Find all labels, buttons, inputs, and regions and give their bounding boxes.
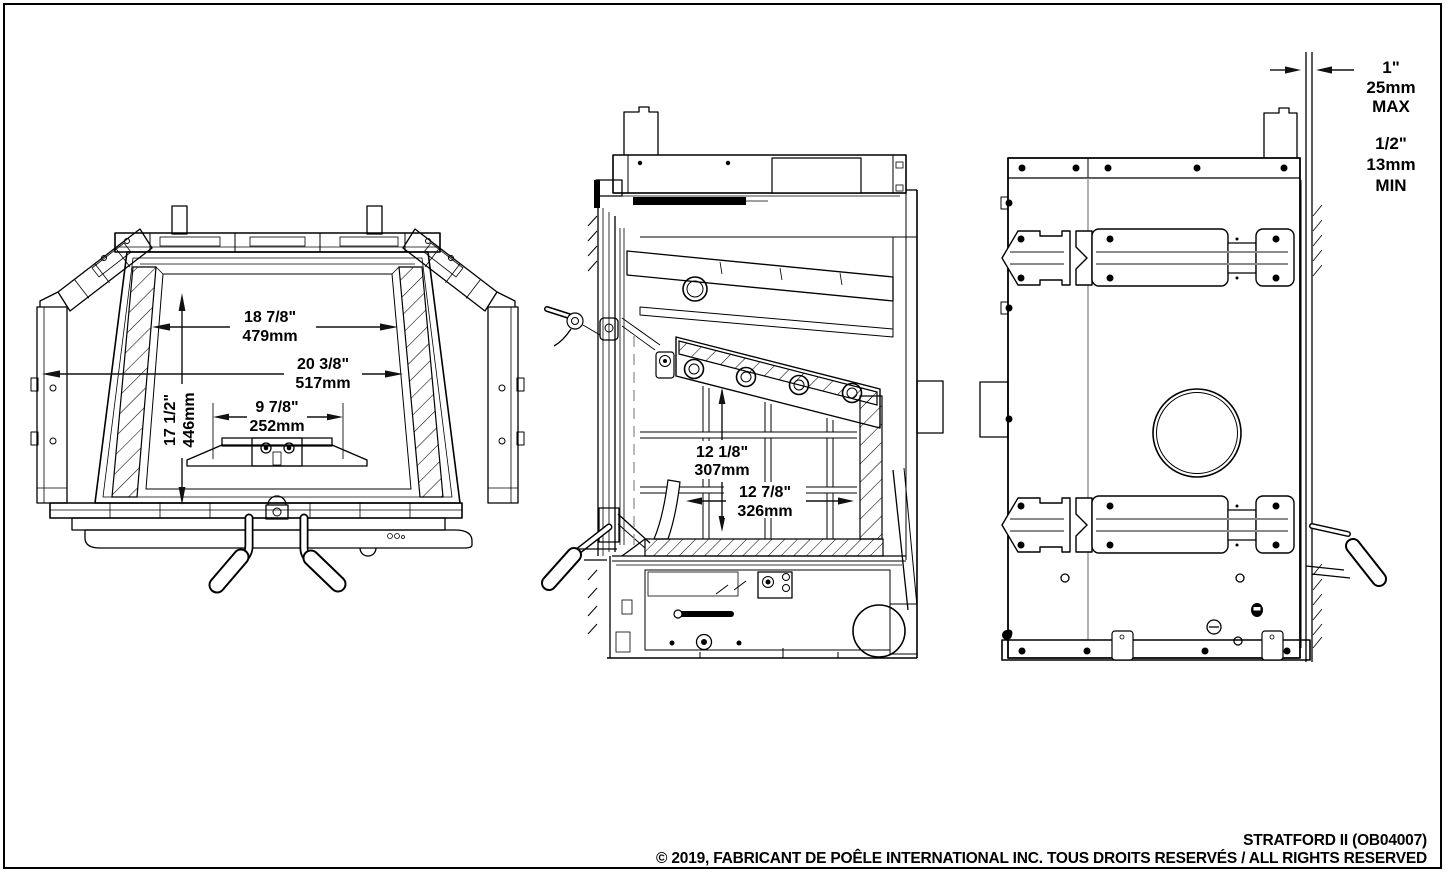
rear-flue-outlet — [1153, 389, 1241, 477]
side-latch-pivot — [567, 313, 583, 329]
rear-view — [980, 52, 1379, 662]
technical-drawing: 18 7/8" 479mm 20 3/8" 517mm 9 7/8" 252mm — [0, 0, 1445, 872]
rear-bracket-bottom — [1002, 496, 1294, 553]
dim-front-center-width-in: 9 7/8" — [255, 399, 298, 416]
side-flue-collar — [624, 107, 658, 155]
side-handle — [549, 527, 617, 583]
rear-body — [980, 108, 1300, 658]
side-rear-brick — [860, 396, 882, 539]
front-hatch-right — [399, 267, 443, 497]
rear-side-box — [980, 382, 1008, 437]
side-baffle-plate — [627, 251, 893, 301]
side-rear-box — [917, 381, 943, 433]
front-hatch-left — [112, 267, 156, 497]
front-top-tab-left — [172, 206, 187, 234]
front-grate — [187, 438, 367, 466]
front-handles — [217, 518, 338, 585]
rear-flue-collar — [1264, 108, 1297, 158]
front-top-tab-right — [367, 206, 382, 234]
clearance-min-mm: 13mm — [1366, 155, 1415, 174]
front-dimensions: 18 7/8" 479mm 20 3/8" 517mm 9 7/8" 252mm — [42, 293, 403, 505]
dim-glass-width: 18 7/8" 479mm — [152, 309, 398, 345]
dim-side-firebox-height-in: 12 1/8" — [696, 444, 748, 461]
wall-lines — [1301, 52, 1322, 662]
dim-side-firebox-height-mm: 307mm — [694, 462, 749, 479]
dim-center-width: 9 7/8" 252mm — [213, 399, 343, 459]
rear-details — [1002, 574, 1310, 660]
side-blower — [853, 605, 905, 657]
copyright-line: © 2019, FABRICANT DE POÊLE INTERNATIONAL… — [656, 849, 1427, 867]
side-view: 12 1/8" 307mm 12 7/8" 326mm — [547, 107, 943, 658]
drawing-page: 18 7/8" 479mm 20 3/8" 517mm 9 7/8" 252mm — [0, 0, 1445, 872]
rear-bracket-top — [1002, 229, 1294, 286]
front-view: 18 7/8" 479mm 20 3/8" 517mm 9 7/8" 252mm — [31, 206, 524, 585]
clearance-max-mm: 25mm — [1366, 78, 1415, 97]
dim-front-opening-width-in: 20 3/8" — [297, 356, 349, 373]
clearance-min-in: 1/2" — [1375, 134, 1407, 153]
front-right-panel — [488, 307, 524, 503]
dim-side-firebox-depth-in: 12 7/8" — [739, 484, 791, 501]
footer: STRATFORD II (OB04007) © 2019, FABRICANT… — [656, 832, 1427, 867]
clearance-annotation: 1" 25mm MAX 1/2" 13mm MIN — [1270, 58, 1416, 195]
rear-handle — [1306, 526, 1379, 579]
front-ash-lip — [85, 530, 472, 548]
model-number: STRATFORD II (OB04007) — [1243, 832, 1427, 849]
front-body — [31, 206, 524, 503]
dim-opening-width: 20 3/8" 517mm — [42, 356, 403, 392]
dim-front-opening-width-mm: 517mm — [295, 375, 350, 392]
front-base — [50, 496, 472, 556]
dim-front-height-mm: 446mm — [181, 392, 198, 447]
dim-front-height-in: 17 1/2" — [162, 394, 179, 446]
side-baffle-bar — [633, 197, 746, 205]
dim-front-center-width-mm: 252mm — [249, 418, 304, 435]
side-air-duct — [654, 480, 680, 539]
dim-front-glass-width-mm: 479mm — [242, 328, 297, 345]
clearance-max-in: 1" — [1382, 58, 1400, 77]
clearance-min-label: MIN — [1375, 176, 1406, 195]
dim-firebox-depth: 12 7/8" 326mm — [686, 482, 854, 520]
dim-side-firebox-depth-mm: 326mm — [737, 503, 792, 520]
front-glass — [146, 274, 411, 489]
clearance-max-label: MAX — [1372, 97, 1410, 116]
dim-front-glass-width-in: 18 7/8" — [244, 309, 296, 326]
front-left-panel — [31, 307, 67, 503]
side-floor-brick — [645, 539, 883, 556]
side-floor — [612, 539, 906, 565]
